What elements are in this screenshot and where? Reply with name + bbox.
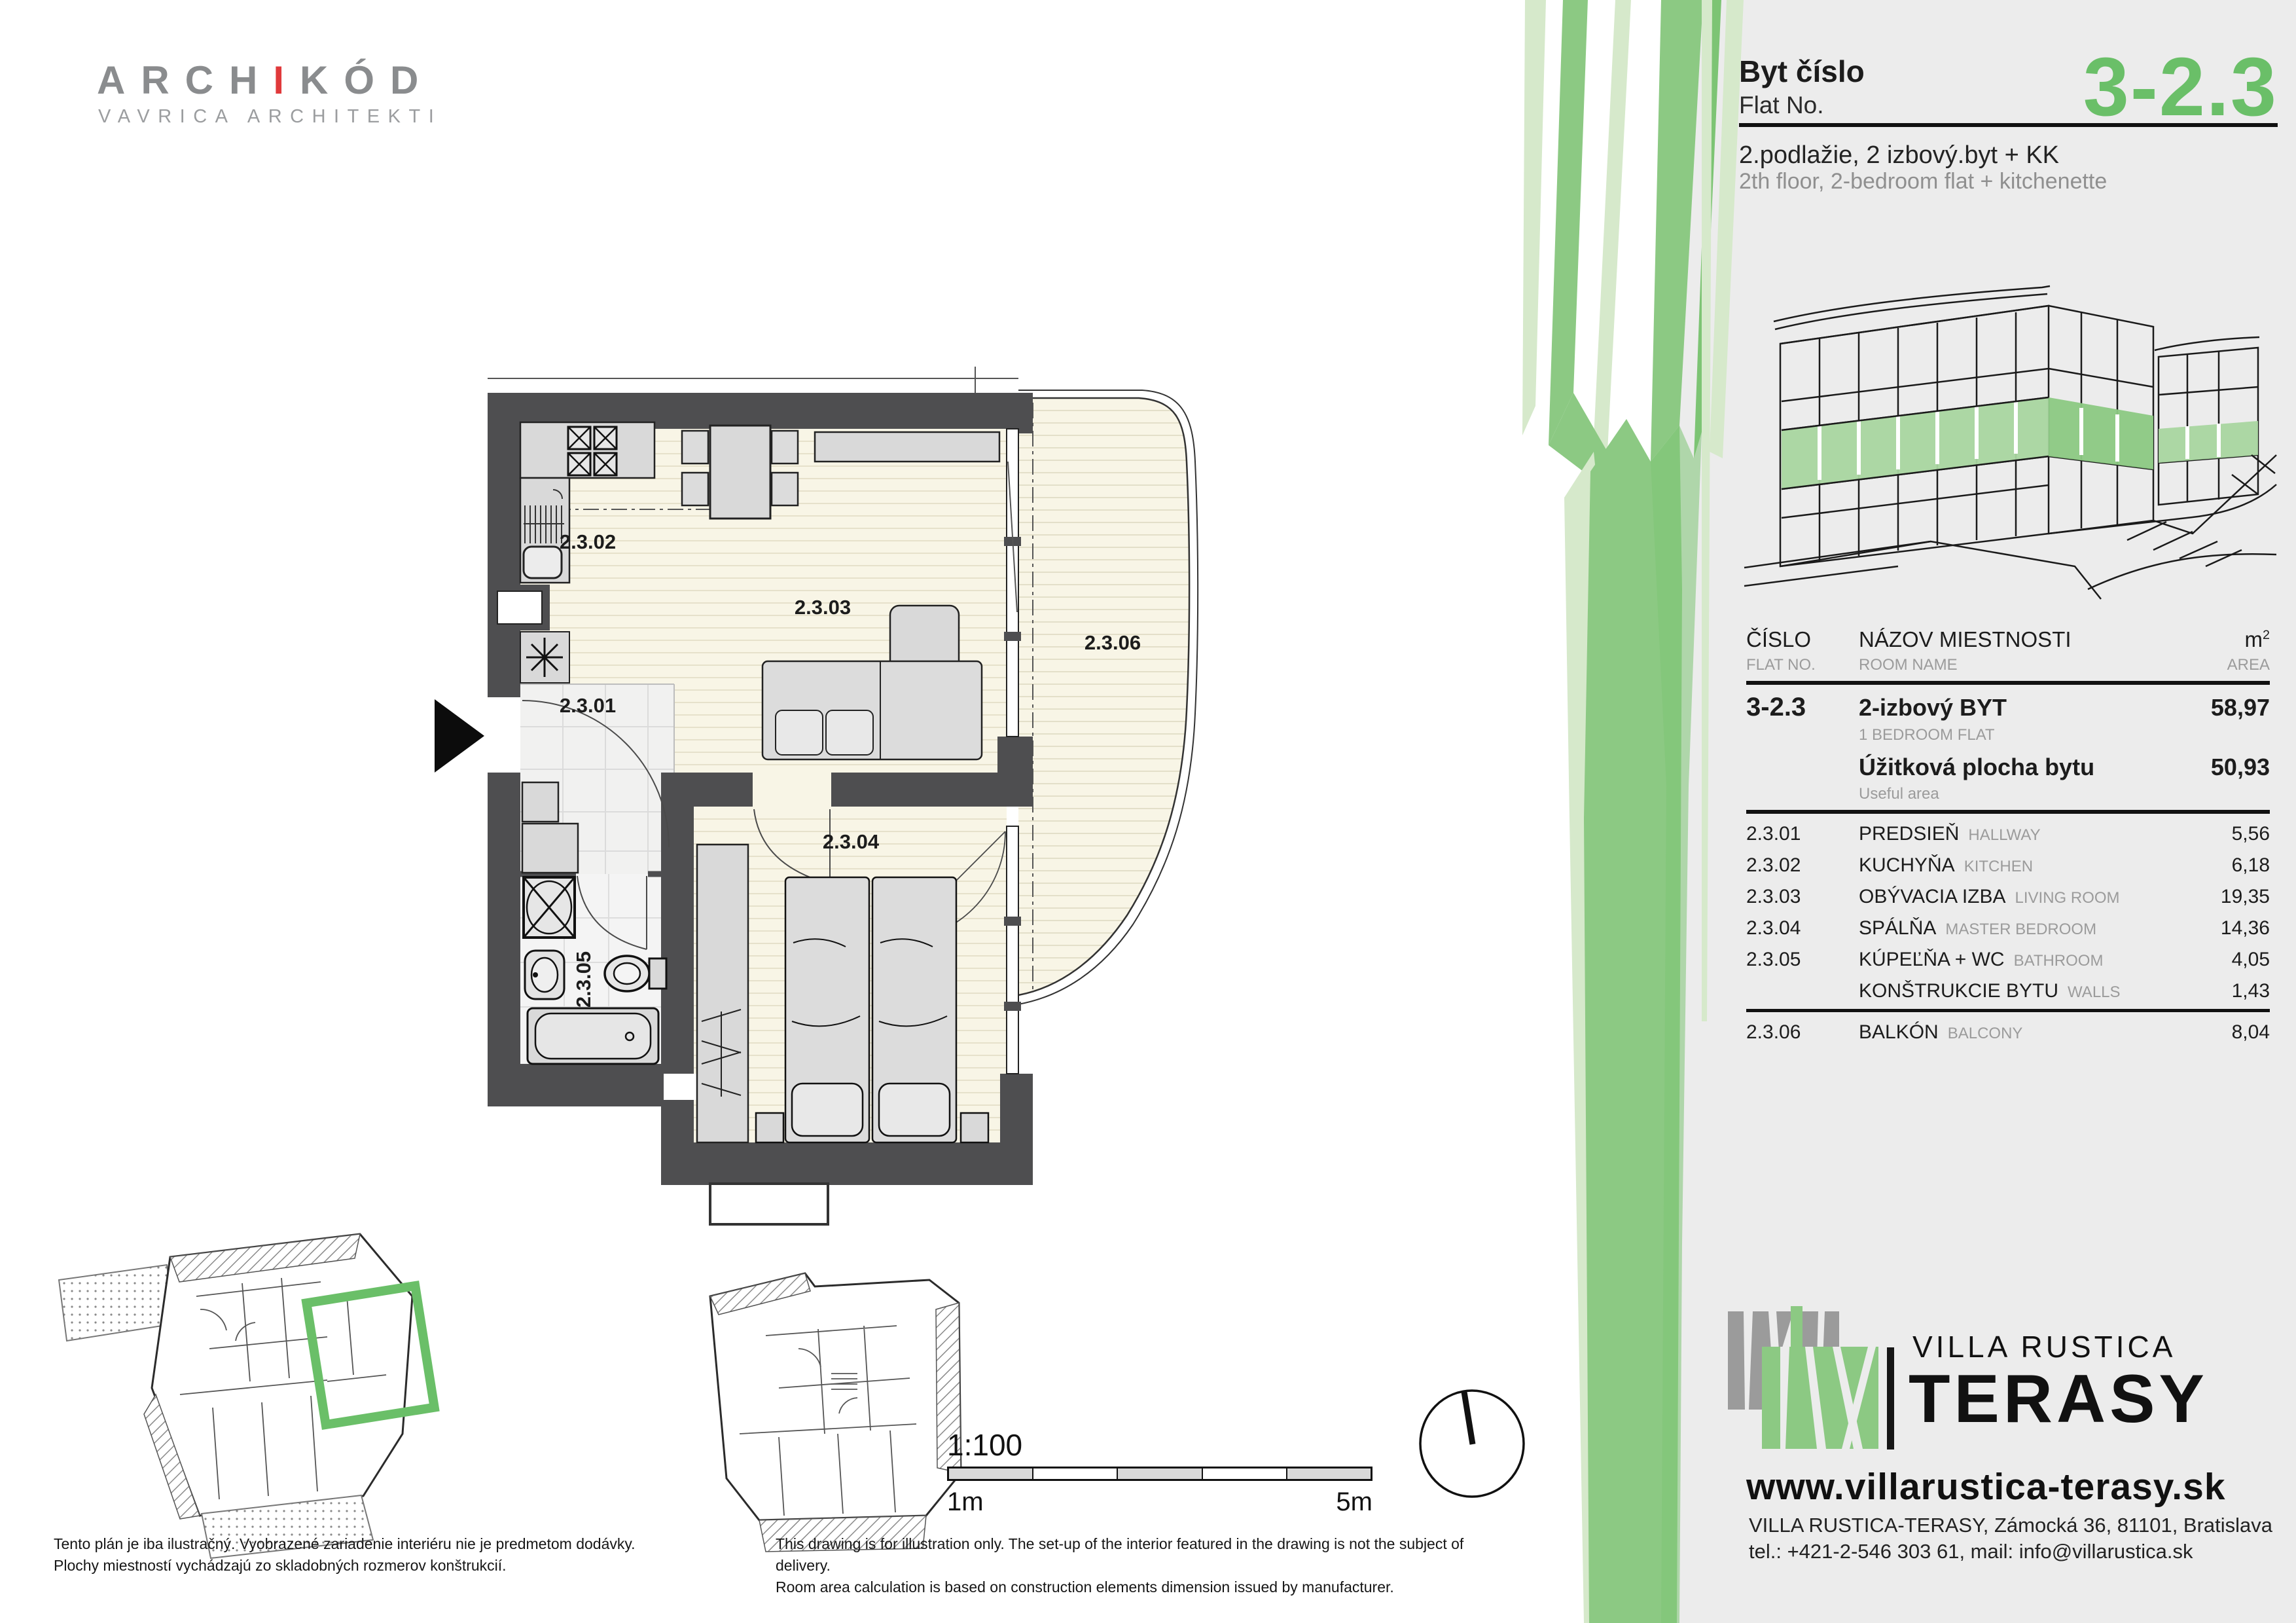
table-row: 2.3.02 KUCHYŇAKITCHEN 6,18: [1746, 854, 2270, 877]
disclaimer-en-line2: Room area calculation is based on constr…: [776, 1577, 1469, 1598]
dining-set: [682, 426, 798, 519]
table-row: 2.3.03 OBÝVACIA IZBALIVING ROOM 19,35: [1746, 886, 2270, 908]
table-row: 2.3.01 PREDSIEŇHALLWAY 5,56: [1746, 823, 2270, 845]
brand-website[interactable]: www.villarustica-terasy.sk: [1746, 1465, 2278, 1508]
tree-strip-graphic: [1486, 0, 1748, 1623]
vent-symbol-icon: [520, 632, 569, 683]
flat-number-label-en: Flat No.: [1739, 92, 1824, 119]
table-row: 2.3.05 KÚPEĽŇA + WCBATHROOM 4,05: [1746, 949, 2270, 971]
washbasin-icon: [525, 951, 564, 999]
table-rule: [1746, 681, 2270, 685]
key-plan-other-floor: [710, 1273, 961, 1552]
room-table: ČÍSLO NÁZOV MIESTNOSTI m2 FLAT NO. ROOM …: [1746, 627, 2270, 1044]
key-plan-current-floor: [59, 1234, 435, 1558]
floor-plan: 2.3.02 2.3.01 2.3.03 2.3.04 2.3.05 2.3.0…: [419, 354, 1230, 1296]
scale-bar-segment: [1032, 1468, 1118, 1479]
useful-area-en-row: Useful area: [1746, 785, 2270, 803]
brand-line2: TERASY: [1909, 1360, 2208, 1438]
tv-sideboard: [815, 432, 999, 462]
flat-summary-en-row: 1 BEDROOM FLAT: [1746, 726, 2270, 744]
scale-ratio: 1:100: [947, 1427, 1022, 1463]
useful-area-row: Úžitková plocha bytu 50,93: [1746, 754, 2270, 781]
compass-icon: [1414, 1387, 1532, 1502]
logo-divider-bar: [1887, 1347, 1894, 1450]
room-label-balcony: 2.3.06: [1085, 631, 1141, 654]
window-living: [1004, 429, 1021, 737]
wardrobe: [697, 845, 748, 1142]
brand-contact: tel.: +421-2-546 303 61, mail: info@vill…: [1749, 1540, 2280, 1563]
col-header-code: ČÍSLO: [1746, 627, 1859, 652]
window-bedroom: [1004, 826, 1021, 1074]
col-header-area: m2: [2191, 627, 2270, 652]
room-label-kitchen: 2.3.02: [560, 530, 616, 553]
flat-description-en: 2th floor, 2-bedroom flat + kitchenette: [1739, 169, 2107, 194]
disclaimer-sk-line2: Plochy miestností vychádzajú zo skladobn…: [54, 1555, 734, 1577]
scale-bar: [947, 1467, 1372, 1481]
key-plans: [46, 1218, 1028, 1571]
header-divider: [1739, 123, 2278, 127]
hall-closet-large: [522, 824, 578, 873]
wall-window-box: [490, 585, 550, 630]
table-rule: [1746, 1009, 2270, 1012]
sink-icon: [524, 547, 562, 578]
flat-number-value: 3-2.3: [1898, 39, 2278, 134]
room-label-bathroom: 2.3.05: [572, 951, 595, 1008]
plan-sheet: ARCHIKÓD VAVRICA ARCHITEKTI: [0, 0, 2296, 1623]
flat-summary-row: 3-2.3 2-izbový BYT 58,97: [1746, 693, 2270, 722]
disclaimer-en: This drawing is for illustration only. T…: [776, 1533, 1469, 1598]
disclaimer-sk-line1: Tento plán je iba ilustračný. Vyobrazené…: [54, 1533, 734, 1555]
scale-bar-segment: [1202, 1468, 1287, 1479]
hall-closet-small: [522, 782, 558, 822]
table-subheader-row: FLAT NO. ROOM NAME AREA: [1746, 656, 2270, 674]
bathtub-icon: [528, 1008, 658, 1064]
scale-bar-segment: [949, 1468, 1032, 1479]
table-rule: [1746, 810, 2270, 814]
disclaimer-en-line1: This drawing is for illustration only. T…: [776, 1533, 1469, 1577]
brand-address: VILLA RUSTICA-TERASY, Zámocká 36, 81101,…: [1749, 1514, 2280, 1537]
archikod-logo-pre: ARCH: [97, 58, 273, 102]
table-row: KONŠTRUKCIE BYTUWALLS 1,43: [1746, 980, 2270, 1002]
table-row: 2.3.04 SPÁLŇAMASTER BEDROOM 14,36: [1746, 917, 2270, 939]
parapet-line: [488, 367, 1018, 393]
room-label-living: 2.3.03: [795, 596, 851, 619]
scale-min-label: 1m: [947, 1487, 984, 1517]
wc-icon: [605, 956, 666, 991]
entrance-arrow-icon: [435, 699, 484, 773]
scale-max-label: 5m: [1307, 1487, 1372, 1517]
villa-rustica-logo-icon: [1728, 1306, 1898, 1457]
room-label-bedroom: 2.3.04: [823, 830, 880, 853]
flat-number-label-sk: Byt číslo: [1739, 55, 1865, 88]
scale-bar-segment: [1287, 1468, 1371, 1479]
double-bed: [756, 877, 988, 1142]
archikod-logo-post: KÓD: [300, 58, 434, 102]
highlight-floor-band: [1782, 397, 2049, 489]
shower-icon: [524, 877, 575, 938]
col-header-name: NÁZOV MIESTNOSTI: [1859, 627, 2191, 652]
room-label-hallway: 2.3.01: [560, 694, 616, 717]
balcony-2306: [1014, 390, 1198, 1004]
disclaimer-sk: Tento plán je iba ilustračný. Vyobrazené…: [54, 1533, 734, 1577]
building-illustration: [1734, 259, 2278, 606]
flat-description-sk: 2.podlažie, 2 izbový.byt + KK: [1739, 141, 2059, 170]
brand-line1: VILLA RUSTICA: [1912, 1329, 2176, 1364]
archikod-subtitle: VAVRICA ARCHITEKTI: [98, 106, 442, 128]
scale-bar-segment: [1118, 1468, 1201, 1479]
balcony-row: 2.3.06 BALKÓNBALCONY 8,04: [1746, 1021, 2270, 1044]
bedroom-door-gap: [753, 773, 831, 807]
archikod-logo: ARCHIKÓD: [97, 58, 434, 103]
table-header-row: ČÍSLO NÁZOV MIESTNOSTI m2: [1746, 627, 2270, 652]
archikod-logo-accent: I: [273, 58, 300, 102]
